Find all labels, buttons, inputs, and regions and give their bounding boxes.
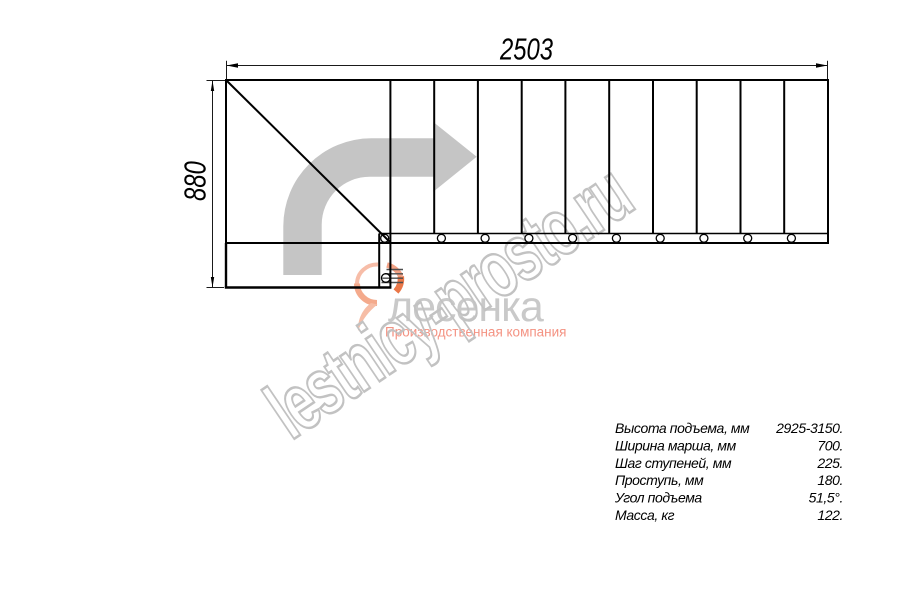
svg-text:2503: 2503 (499, 31, 553, 66)
svg-text:2925-3150.: 2925-3150. (775, 420, 843, 436)
svg-text:Угол подъема: Угол подъема (614, 490, 702, 506)
svg-text:225.: 225. (816, 455, 843, 471)
svg-text:Проступь, мм: Проступь, мм (615, 472, 704, 488)
svg-text:700.: 700. (817, 437, 843, 453)
svg-text:180.: 180. (817, 472, 843, 488)
svg-text:880: 880 (177, 161, 212, 201)
svg-text:Масса, кг: Масса, кг (615, 507, 675, 523)
svg-text:Высота подъема, мм: Высота подъема, мм (615, 420, 750, 436)
svg-text:Ширина марша, мм: Ширина марша, мм (615, 437, 737, 453)
svg-text:51,5°.: 51,5°. (809, 490, 843, 506)
svg-text:122.: 122. (817, 507, 843, 523)
svg-text:Шаг ступеней, мм: Шаг ступеней, мм (615, 455, 732, 471)
